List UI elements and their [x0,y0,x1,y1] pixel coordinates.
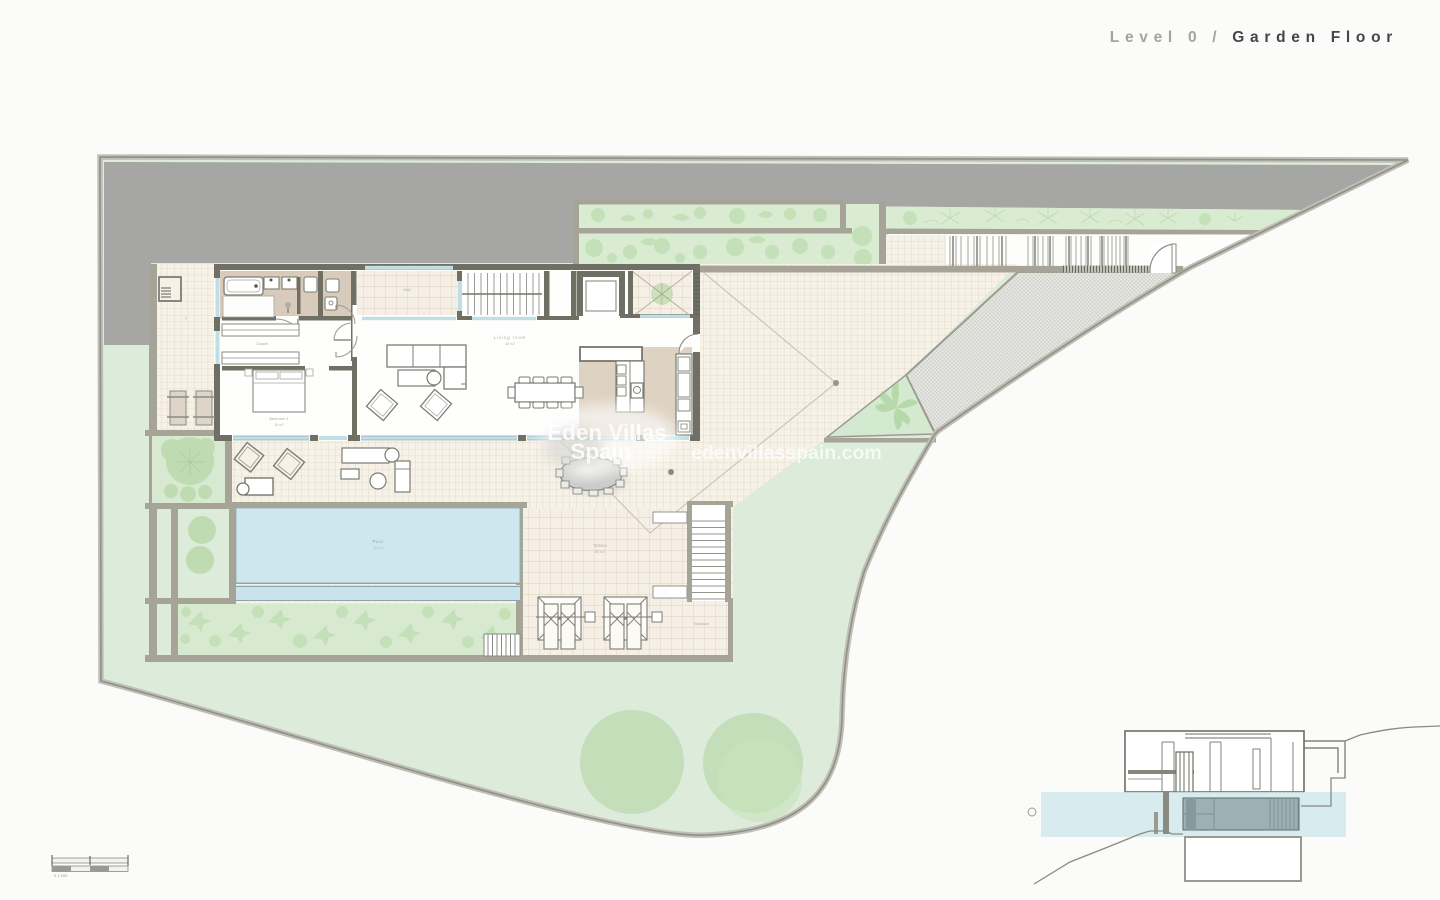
svg-text:Bedroom 1: Bedroom 1 [269,416,289,421]
svg-text:Hall: Hall [404,287,411,292]
svg-text:Level 0 / Garden Floor: Level 0 / Garden Floor [1110,29,1398,46]
svg-text:0 1:200: 0 1:200 [54,873,68,878]
svg-text:Pool: Pool [372,539,383,544]
svg-text:12 x 4: 12 x 4 [373,546,383,550]
svg-text:Solarium: Solarium [694,622,709,626]
svg-text:85 m2: 85 m2 [595,550,605,554]
svg-text:Spain: Spain [570,439,631,464]
svg-text:16 m2: 16 m2 [274,423,284,427]
svg-text:Terrace: Terrace [593,543,608,548]
svg-text:Closet: Closet [256,341,268,346]
svg-text:48 m2: 48 m2 [505,342,515,346]
svg-text:edenvillasspain.com: edenvillasspain.com [691,442,882,464]
svg-text:Living room: Living room [494,335,527,340]
